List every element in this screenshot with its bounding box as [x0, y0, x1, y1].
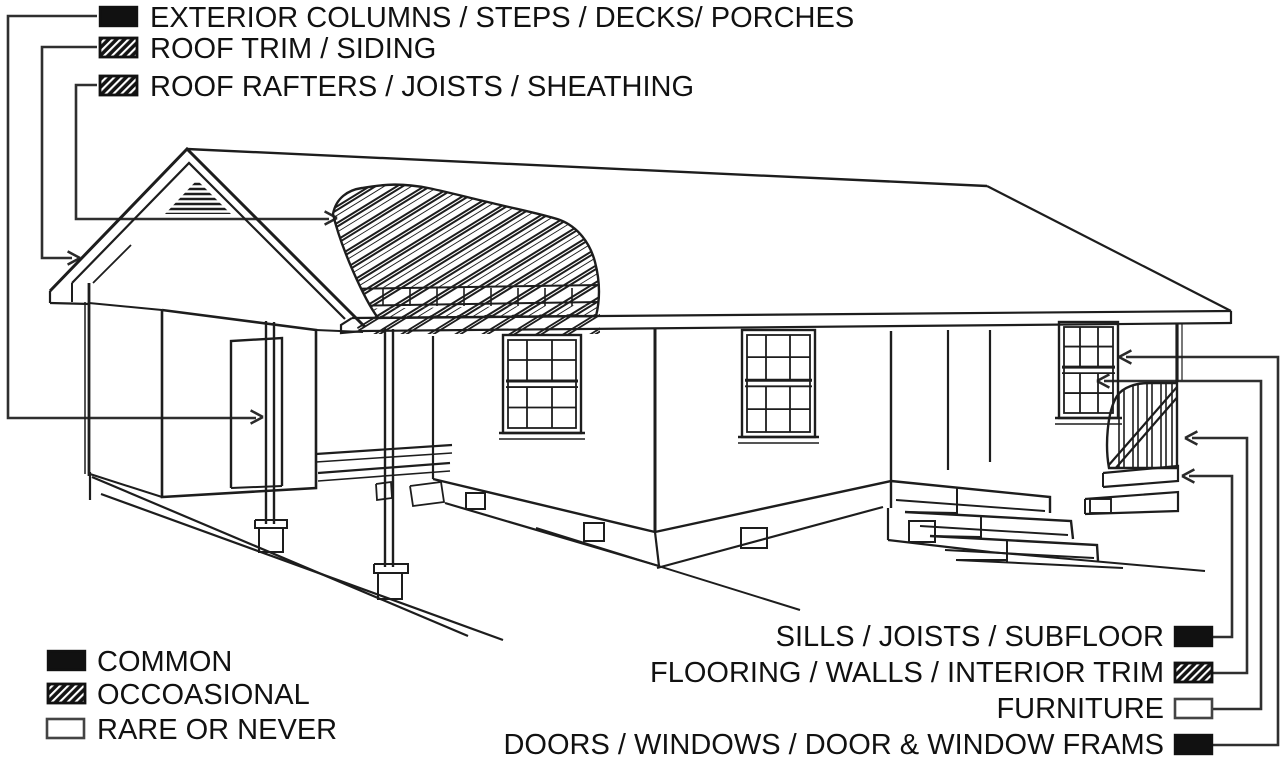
svg-text:OCCOASIONAL: OCCOASIONAL	[97, 679, 310, 711]
svg-text:SILLS / JOISTS / SUBFLOOR: SILLS / JOISTS / SUBFLOOR	[776, 621, 1164, 653]
svg-text:FURNITURE: FURNITURE	[996, 693, 1164, 725]
svg-text:RARE OR NEVER: RARE OR NEVER	[97, 714, 337, 746]
svg-text:DOORS / WINDOWS / DOOR & WINDO: DOORS / WINDOWS / DOOR & WINDOW FRAMS	[503, 729, 1164, 761]
svg-text:ROOF TRIM / SIDING: ROOF TRIM / SIDING	[150, 33, 436, 65]
svg-text:COMMON: COMMON	[97, 646, 232, 678]
svg-text:ROOF RAFTERS / JOISTS / SHEATH: ROOF RAFTERS / JOISTS / SHEATHING	[150, 71, 694, 103]
svg-text:FLOORING / WALLS / INTERIOR TR: FLOORING / WALLS / INTERIOR TRIM	[650, 657, 1164, 689]
svg-text:EXTERIOR COLUMNS / STEPS / DEC: EXTERIOR COLUMNS / STEPS / DECKS/ PORCHE…	[150, 2, 854, 34]
